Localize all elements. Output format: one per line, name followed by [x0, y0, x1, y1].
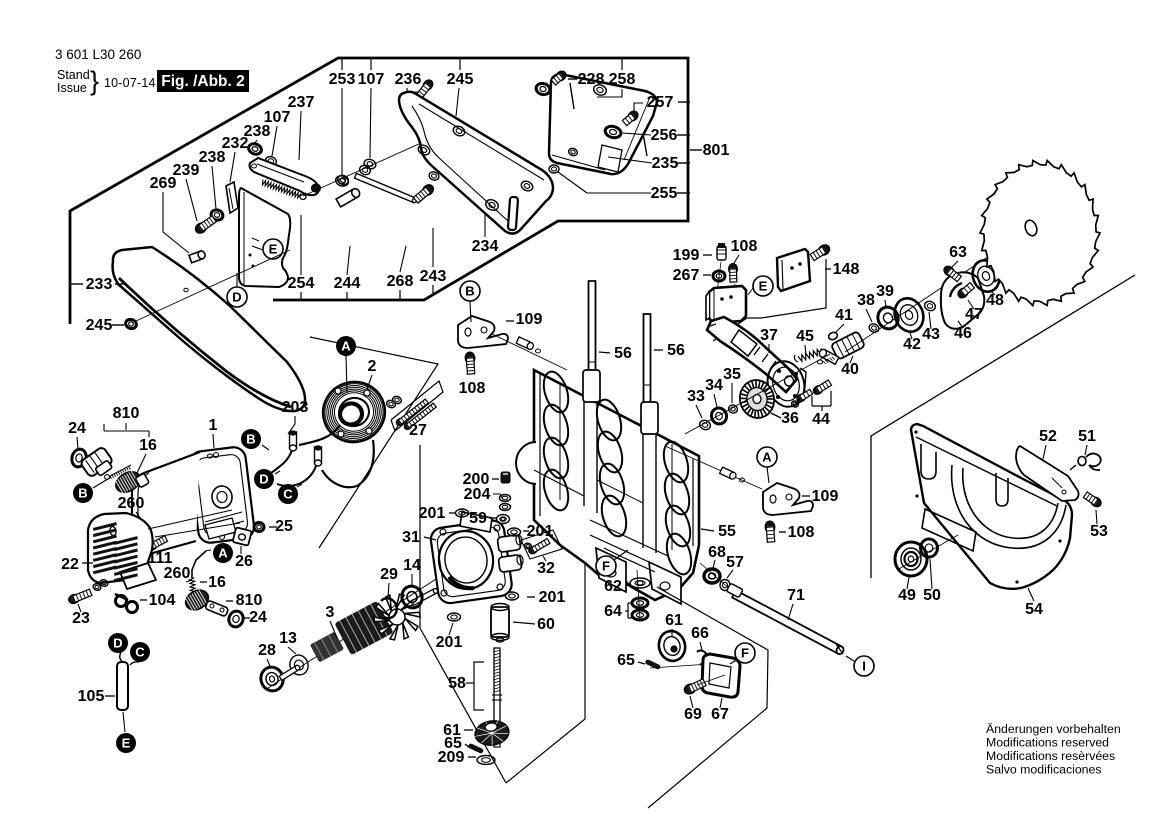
svg-text:Fig. /Abb. 2: Fig. /Abb. 2	[161, 73, 245, 90]
svg-text:65: 65	[617, 652, 635, 669]
svg-text:209: 209	[438, 749, 465, 766]
svg-text:67: 67	[711, 706, 729, 723]
svg-text:810: 810	[113, 405, 140, 422]
svg-text:Salvo modificaciones: Salvo modificaciones	[986, 763, 1102, 777]
svg-text:104: 104	[149, 592, 176, 609]
svg-text:236: 236	[395, 71, 422, 88]
svg-text:16: 16	[208, 574, 226, 591]
svg-text:239: 239	[173, 162, 200, 179]
svg-text:68: 68	[708, 544, 726, 561]
svg-text:D: D	[259, 472, 268, 487]
svg-text:260: 260	[164, 565, 191, 582]
svg-text:29: 29	[380, 566, 398, 583]
svg-text:63: 63	[949, 244, 967, 261]
svg-text:56: 56	[614, 345, 632, 362]
svg-text:27: 27	[409, 422, 427, 439]
svg-text:148: 148	[833, 261, 860, 278]
svg-text:237: 237	[288, 94, 315, 111]
svg-text:38: 38	[857, 292, 875, 309]
svg-text:40: 40	[841, 361, 859, 378]
svg-text:58: 58	[448, 675, 466, 692]
svg-text:243: 243	[420, 268, 447, 285]
svg-text:255: 255	[651, 185, 678, 202]
svg-text:41: 41	[835, 307, 853, 324]
svg-text:256: 256	[651, 127, 678, 144]
svg-text:245: 245	[447, 71, 474, 88]
svg-text:49: 49	[898, 587, 916, 604]
svg-text:B: B	[246, 432, 255, 447]
svg-text:22: 22	[61, 556, 79, 573]
svg-text:32: 32	[537, 560, 555, 577]
svg-text:Issue: Issue	[57, 81, 87, 95]
svg-text:Modifications resèrvées: Modifications resèrvées	[986, 749, 1115, 763]
svg-text:59: 59	[469, 510, 487, 527]
svg-text:258: 258	[609, 71, 636, 88]
svg-text:I: I	[862, 659, 866, 674]
svg-text:31: 31	[402, 529, 420, 546]
svg-text:268: 268	[387, 273, 414, 290]
svg-text:E: E	[122, 736, 131, 751]
svg-text:16: 16	[139, 437, 157, 454]
svg-text:108: 108	[459, 380, 486, 397]
svg-text:199: 199	[673, 247, 700, 264]
svg-text:44: 44	[812, 411, 830, 428]
svg-text:810: 810	[236, 592, 263, 609]
svg-text:F: F	[741, 646, 749, 661]
svg-text:E: E	[759, 279, 768, 294]
svg-text:D: D	[113, 636, 122, 651]
svg-text:201: 201	[436, 634, 463, 651]
svg-text:C: C	[135, 645, 145, 660]
svg-text:36: 36	[781, 410, 799, 427]
svg-text:267: 267	[673, 267, 700, 284]
svg-text:24: 24	[68, 420, 86, 437]
svg-text:801: 801	[703, 142, 730, 159]
svg-text:53: 53	[1090, 523, 1108, 540]
svg-text:34: 34	[705, 377, 723, 394]
svg-text:55: 55	[718, 523, 736, 540]
svg-text:B: B	[465, 284, 474, 299]
svg-text:201: 201	[539, 589, 566, 606]
svg-text:233: 233	[86, 276, 113, 293]
svg-text:269: 269	[150, 175, 177, 192]
svg-text:234: 234	[472, 238, 499, 255]
svg-text:201: 201	[419, 505, 446, 522]
svg-text:33: 33	[687, 388, 705, 405]
svg-text:66: 66	[691, 625, 709, 642]
svg-text:260: 260	[118, 495, 145, 512]
svg-text:64: 64	[604, 603, 622, 620]
svg-text:108: 108	[788, 524, 815, 541]
svg-text:253: 253	[329, 71, 356, 88]
svg-text:204: 204	[464, 486, 491, 503]
svg-text:56: 56	[667, 342, 685, 359]
svg-text:50: 50	[923, 587, 941, 604]
svg-text:23: 23	[72, 610, 90, 627]
svg-text:69: 69	[684, 706, 702, 723]
svg-text:71: 71	[787, 587, 805, 604]
svg-text:F: F	[602, 559, 610, 574]
svg-text:Modifications reserved: Modifications reserved	[986, 736, 1109, 750]
svg-text:232: 232	[222, 135, 249, 152]
svg-text:105: 105	[78, 688, 105, 705]
svg-text:244: 244	[334, 275, 361, 292]
svg-text:Stand: Stand	[57, 68, 90, 82]
svg-text:26: 26	[235, 553, 253, 570]
svg-text:A: A	[218, 546, 228, 561]
svg-text:109: 109	[516, 311, 543, 328]
svg-text:238: 238	[199, 149, 226, 166]
svg-text:35: 35	[723, 366, 741, 383]
svg-text:14: 14	[403, 557, 421, 574]
svg-text:13: 13	[279, 630, 297, 647]
svg-text:203: 203	[282, 399, 309, 416]
svg-text:235: 235	[652, 155, 679, 172]
svg-text:108: 108	[731, 238, 758, 255]
svg-text:257: 257	[647, 94, 674, 111]
svg-text:60: 60	[537, 616, 555, 633]
svg-text:39: 39	[876, 283, 894, 300]
svg-text:Änderungen vorbehalten: Änderungen vorbehalten	[986, 722, 1121, 736]
svg-text:52: 52	[1039, 428, 1057, 445]
svg-text:37: 37	[760, 327, 778, 344]
svg-text:25: 25	[275, 518, 293, 535]
svg-text:2: 2	[368, 358, 377, 375]
svg-text:}: }	[90, 66, 99, 96]
svg-text:245: 245	[86, 317, 113, 334]
svg-text:51: 51	[1078, 428, 1096, 445]
svg-text:A: A	[341, 339, 351, 354]
svg-text:45: 45	[796, 328, 814, 345]
svg-text:1: 1	[209, 417, 218, 434]
svg-text:3: 3	[326, 604, 335, 621]
svg-text:228: 228	[578, 71, 605, 88]
svg-text:61: 61	[665, 612, 683, 629]
svg-text:24: 24	[249, 609, 267, 626]
svg-text:109: 109	[812, 488, 839, 505]
svg-text:A: A	[762, 450, 772, 465]
svg-text:3 601 L30 260: 3 601 L30 260	[55, 47, 141, 62]
svg-text:254: 254	[288, 275, 315, 292]
svg-text:D: D	[232, 290, 241, 305]
svg-text:E: E	[269, 242, 278, 257]
svg-text:10-07-14: 10-07-14	[104, 76, 156, 90]
svg-text:28: 28	[258, 642, 276, 659]
svg-text:107: 107	[358, 71, 385, 88]
svg-text:54: 54	[1025, 601, 1043, 618]
svg-text:57: 57	[726, 554, 744, 571]
svg-text:C: C	[283, 487, 293, 502]
svg-text:B: B	[78, 486, 87, 501]
svg-text:62: 62	[604, 578, 622, 595]
